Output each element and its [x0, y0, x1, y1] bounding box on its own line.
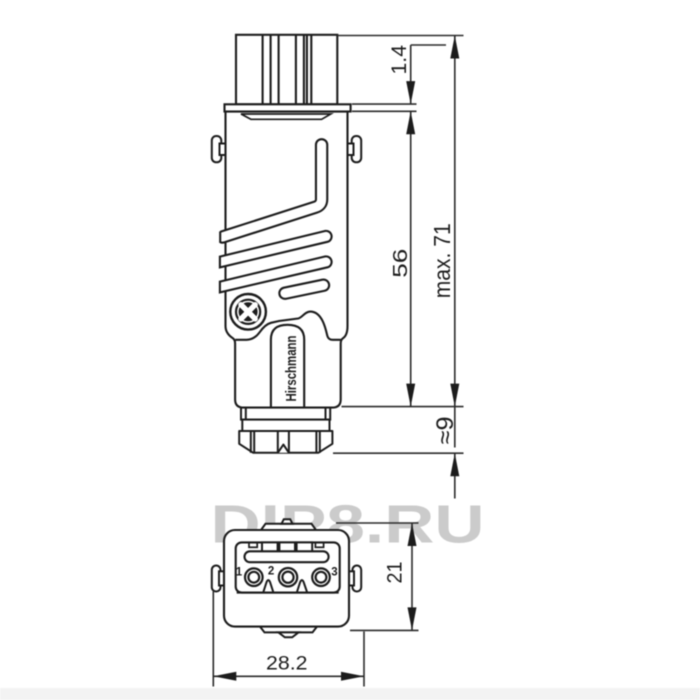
svg-text:3: 3 [331, 566, 337, 578]
svg-text:Hirschmann: Hirschmann [284, 336, 300, 402]
svg-text:2: 2 [268, 566, 274, 578]
svg-text:21: 21 [383, 562, 407, 584]
svg-text:28.2: 28.2 [266, 653, 308, 674]
svg-text:max. 71: max. 71 [429, 223, 455, 298]
svg-text:1.4: 1.4 [387, 45, 411, 75]
svg-text:56: 56 [390, 249, 412, 278]
svg-text:≈9: ≈9 [432, 417, 459, 445]
svg-text:1: 1 [236, 566, 243, 578]
